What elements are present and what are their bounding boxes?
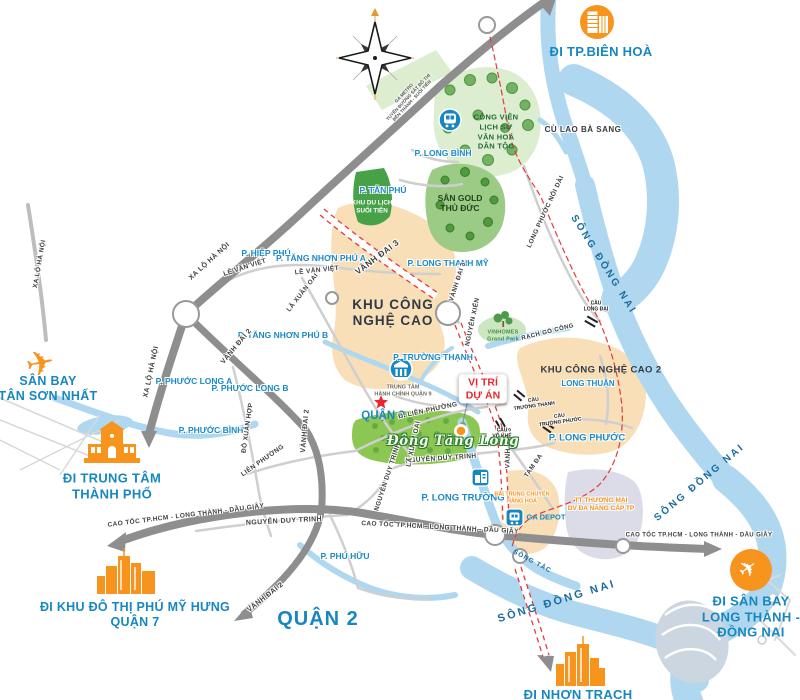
zone-label-suoi-tien: KHU DU LỊCHSUỐI TIÊN xyxy=(352,199,393,214)
ward-truong-thanh: P. TRƯỜNG THẠNH xyxy=(393,352,473,362)
zone-label-khu-cong-nghe-cao: KHU CÔNGNGHỆ CAO xyxy=(352,297,434,329)
map-canvas: ✈ SÂN BAYTÂN SƠN NHẤT ĐI TP.BIÊN HOÀ ĐI … xyxy=(0,0,800,700)
callout-tan-son-nhat: SÂN BAYTÂN SƠN NHẤT xyxy=(0,374,97,404)
metro-station-icon xyxy=(439,109,461,131)
callout-city-center: ĐI TRUNG TÂMTHÀNH PHỐ xyxy=(63,470,161,501)
bien-hoa-city-icon xyxy=(580,5,614,39)
ward-tan-phu: P. TÂN PHÚ xyxy=(359,185,406,195)
ward-long-binh: P. LONG BÌNH xyxy=(415,148,472,158)
callout-bien-hoa: ĐI TP.BIÊN HOÀ xyxy=(550,44,653,60)
poi-tt-thuong-mai: TT THƯƠNG MẠIDV ĐA NĂNG CẤP TP xyxy=(568,497,634,513)
poi-bai-trung-chuyen: BÃI TRUNG CHUYỂNHÀNG HOÁ xyxy=(494,491,549,504)
callout-phu-my-hung: ĐI KHU ĐÔ THỊ PHÚ MỸ HƯNGQUẬN 7 xyxy=(40,600,230,630)
bridge-label-cau-long-dai: CẦULONG ĐẠI xyxy=(584,302,608,314)
ward-tang-nhon-phu-a: P. TĂNG NHƠN PHÚ A xyxy=(276,253,366,263)
callout-nhon-trach: ĐI NHƠN TRẠCH xyxy=(524,687,633,700)
zone-label-khu-cong-nghe-cao-2: KHU CÔNG NGHỆ CAO 2 xyxy=(540,364,661,375)
project-location-badge: VỊ TRÍ DỰ ÁN xyxy=(459,374,507,403)
zone-label-cong-vien: CÔNG VIÊNLỊCH SỬ VĂN HOÁDÂN TỘC xyxy=(474,113,519,152)
district-quan-2: QUẬN 2 xyxy=(277,607,359,631)
poi-ga-depot: GA DEPOT xyxy=(527,513,566,522)
poi-trung-tam-hanh-chinh: TRUNG TÂMHÀNH CHÍNH QUẬN 9 xyxy=(374,384,431,397)
ward-phuoc-long-b: P. PHƯỚC LONG B xyxy=(212,383,289,393)
island-cu-lao-ba-sang: CÙ LAO BÀ SANG xyxy=(545,125,622,135)
ward-phuoc-binh: P. PHƯỚC BÌNH xyxy=(179,425,244,435)
ga-depot-icon xyxy=(506,509,523,526)
long-truong-building-icon xyxy=(472,469,489,486)
poi-dong-tang-long: Đông Tăng Long xyxy=(387,433,519,449)
ward-long-thanh-my: P. LONG THẠNH MỸ xyxy=(407,258,488,268)
callout-long-thanh-airport: ĐI SÂN BAY LONG THÀNH - ĐỒNG NAI xyxy=(702,594,800,641)
nhon-trach-skyline-icon xyxy=(556,636,605,686)
ward-long-truong: P. LONG TRƯỜNG xyxy=(421,492,504,503)
ward-long-phuoc: P. LONG PHƯỚC xyxy=(549,432,626,443)
road-label-cao-toc-3: CAO TỐC TP.HCM - LONG THÀNH - DẦU GIÂY xyxy=(626,532,773,539)
park-suoi-tien xyxy=(353,168,392,225)
ward-phu-huu: P. PHÚ HỮU xyxy=(321,551,370,561)
phu-my-hung-skyline-icon xyxy=(97,548,155,594)
zone-label-san-golf: SÂN GOLDTHỦ ĐỨC xyxy=(438,193,483,213)
ward-long-thuan: LONG THUẬN xyxy=(561,379,614,389)
poi-vinhomes-grand-park: VINHOMESGrand Park xyxy=(487,329,519,342)
